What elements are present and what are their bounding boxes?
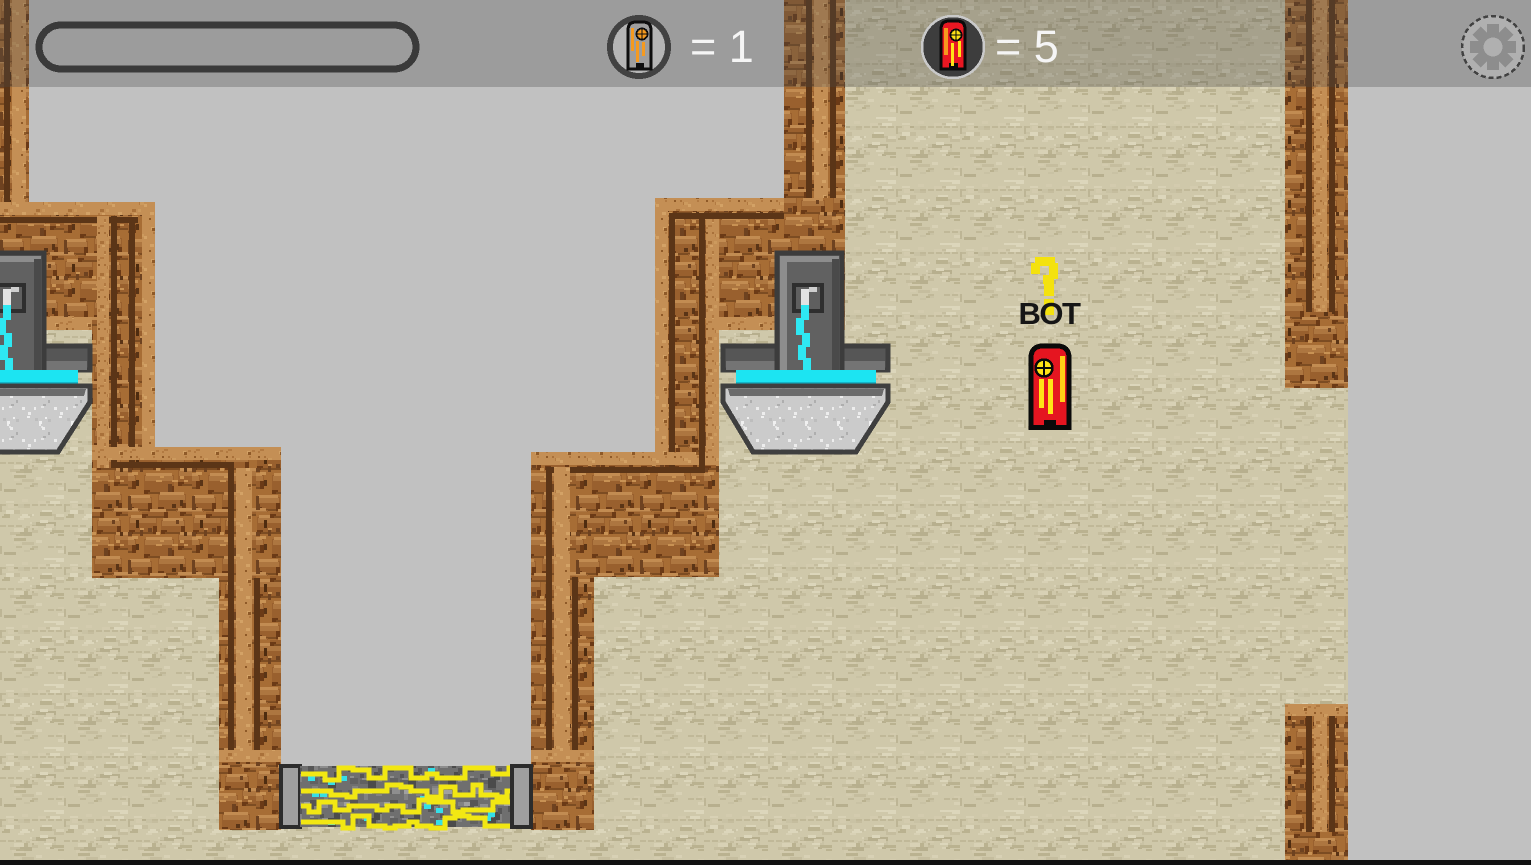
svg-text:BOT: BOT — [1019, 296, 1082, 331]
svg-text:= 1: = 1 — [690, 21, 754, 72]
svg-text:= 5: = 5 — [995, 21, 1059, 72]
